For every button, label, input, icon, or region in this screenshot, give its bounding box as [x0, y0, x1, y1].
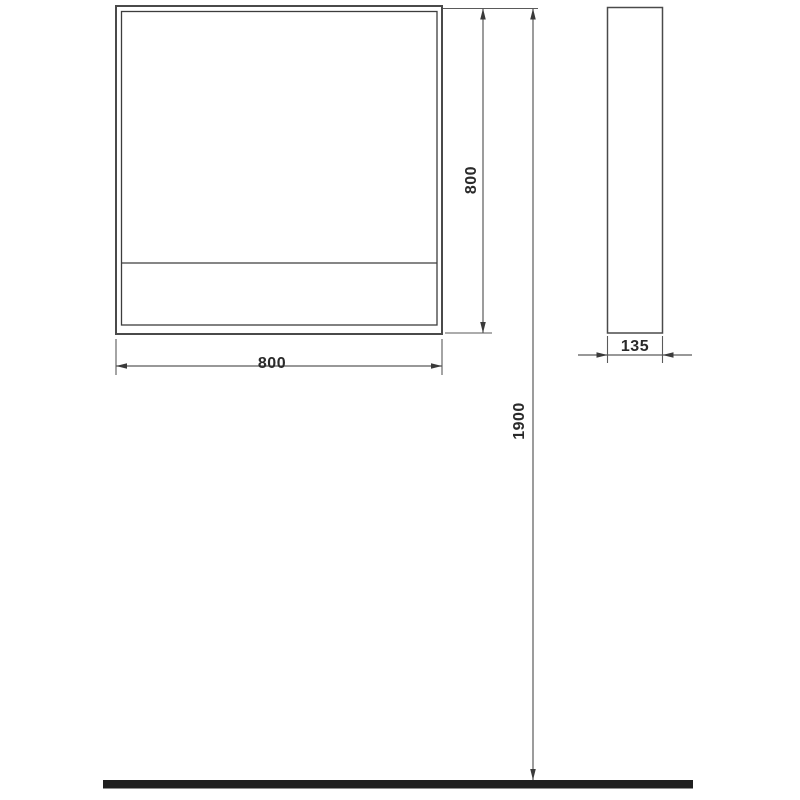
- dimension-label-overall-height: 1900: [511, 402, 528, 440]
- arrowhead-left-icon: [116, 363, 127, 369]
- side-view: [608, 8, 663, 334]
- arrowhead-right-icon: [597, 352, 608, 358]
- floor-line: [103, 780, 693, 789]
- dimension-overall-height: 1900: [511, 9, 536, 781]
- technical-drawing-canvas: 800 1900 800 135: [0, 0, 800, 800]
- arrowhead-up-icon: [530, 9, 536, 20]
- front-view-outer-frame: [116, 6, 442, 334]
- dimension-front-height: 800: [443, 9, 538, 334]
- arrowhead-right-icon: [431, 363, 442, 369]
- drawing-svg: 800 1900 800 135: [0, 0, 800, 800]
- dimension-label-side-depth: 135: [621, 338, 649, 355]
- arrowhead-left-icon: [663, 352, 674, 358]
- front-view-inner-frame: [122, 12, 438, 326]
- dimension-label-front-height: 800: [463, 166, 480, 194]
- dimension-label-front-width: 800: [258, 355, 286, 372]
- dimension-side-depth: 135: [578, 336, 692, 363]
- side-view-outline: [608, 8, 663, 334]
- dimension-front-width: 800: [116, 339, 442, 375]
- arrowhead-down-icon: [530, 769, 536, 780]
- arrowhead-up-icon: [480, 9, 486, 20]
- front-view: [116, 6, 442, 334]
- arrowhead-down-icon: [480, 322, 486, 333]
